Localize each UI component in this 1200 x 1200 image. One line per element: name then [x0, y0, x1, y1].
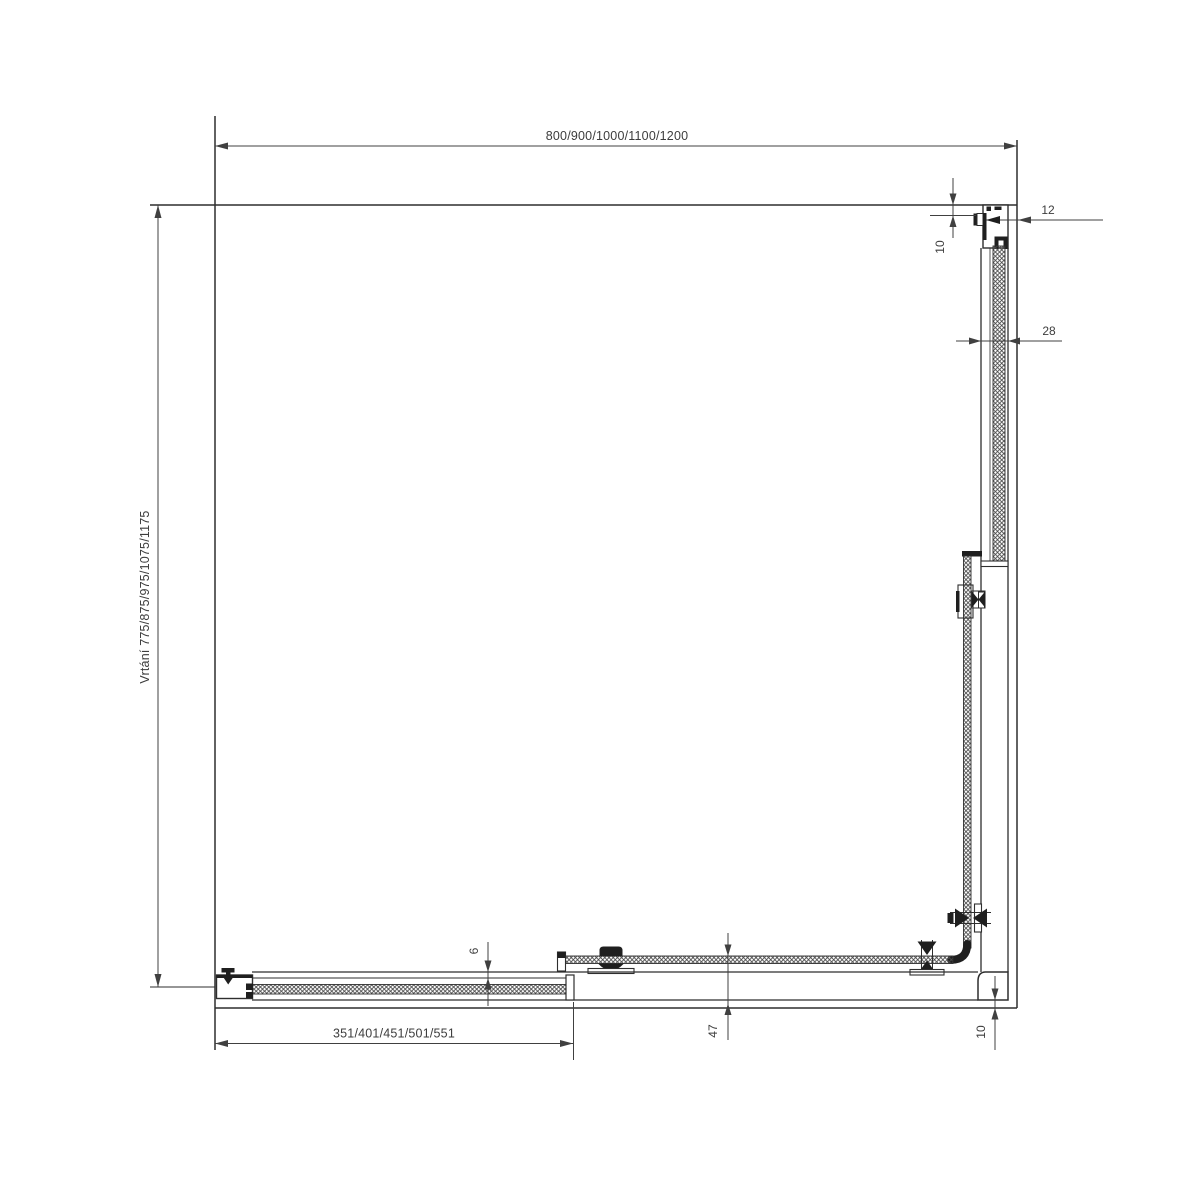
bottom-sliding-panel — [558, 940, 954, 975]
profile-glass-clamp — [246, 992, 253, 998]
dim-top-width-label: 800/900/1000/1100/1200 — [546, 129, 689, 143]
arrowhead-up — [725, 1004, 732, 1016]
dim-profile-width: 28 — [956, 324, 1062, 345]
dim-top-width: 800/900/1000/1100/1200 — [215, 129, 1017, 150]
roller-clamp-pad — [956, 591, 960, 612]
shower-enclosure-plan-drawing: 800/900/1000/1100/1200 Vrtání 775/875/97… — [0, 0, 1200, 1200]
profile-glass-clamp — [246, 984, 253, 991]
corner-post — [978, 972, 1008, 1000]
dim-rail-gap: 6 — [467, 942, 492, 1006]
dim-profile-depth-label: 12 — [1041, 203, 1055, 217]
profile-screw-mark — [987, 207, 992, 212]
arrowhead-left — [1018, 217, 1031, 224]
dim-rail-gap-label: 6 — [467, 947, 481, 954]
clamp-dome-top — [600, 947, 623, 957]
roller-wheel — [918, 942, 937, 956]
dim-wall-gap-top: 10 — [930, 178, 976, 254]
arrowhead-up — [485, 978, 492, 990]
fixed-glass-bottom — [248, 985, 566, 995]
sliding-glass-bottom — [561, 956, 953, 964]
profile-side-bracket-body — [977, 214, 983, 226]
dim-left-drilling: Vrtání 775/875/975/1075/1175 — [138, 205, 162, 987]
left-wall-profile — [217, 968, 254, 999]
arrowhead-up — [950, 216, 957, 228]
arrowhead-right — [560, 1040, 573, 1047]
dim-left-drilling-label: Vrtání 775/875/975/1075/1175 — [138, 510, 152, 683]
clamp-wing-plate — [588, 969, 634, 974]
fixed-panel-bottom-cap — [981, 561, 1008, 567]
roller-wheel — [972, 591, 979, 608]
arrowhead-left — [1008, 338, 1020, 345]
arrowhead-down — [485, 961, 492, 973]
roller-end-nut — [948, 913, 954, 923]
dim-rail-height-label: 47 — [706, 1024, 720, 1038]
enclosure-outline — [150, 116, 1017, 1050]
corner-post-body — [978, 972, 1008, 1000]
sliding-panel-end-cap-top — [558, 952, 566, 958]
dim-profile-width-label: 28 — [1042, 324, 1056, 338]
profile-screw-stem — [226, 973, 231, 977]
profile-inner-wall — [983, 213, 987, 240]
dim-bottom-door: 351/401/451/501/551 — [215, 1002, 574, 1060]
dim-corner-gap-bottom-label: 10 — [974, 1025, 988, 1039]
sliding-glass-right — [964, 556, 972, 948]
profile-screw-mark — [995, 207, 1002, 211]
dim-rail-height: 47 — [706, 933, 732, 1040]
arrowhead-up — [992, 1008, 999, 1020]
arrowhead-left — [215, 143, 228, 150]
arrowhead-down — [155, 974, 162, 987]
right-fixed-panel — [974, 205, 1009, 972]
arrowhead-left — [215, 1040, 228, 1047]
right-sliding-panel — [948, 551, 992, 960]
arrowhead-right — [1004, 143, 1017, 150]
arrowhead-down — [950, 194, 957, 206]
technical-drawing-canvas: 800/900/1000/1100/1200 Vrtání 775/875/97… — [0, 0, 1200, 1200]
dim-bottom-door-label: 351/401/451/501/551 — [333, 1027, 455, 1041]
profile-screw-head — [222, 968, 235, 973]
bottom-fixed-panel — [248, 972, 978, 1000]
arrowhead-down — [725, 945, 732, 957]
fixed-glass-right — [993, 246, 1005, 561]
arrowhead-right — [969, 338, 981, 345]
arrowhead-up — [155, 205, 162, 218]
dim-wall-gap-top-label: 10 — [933, 240, 947, 254]
fixed-panel-end-cap — [566, 975, 574, 1000]
